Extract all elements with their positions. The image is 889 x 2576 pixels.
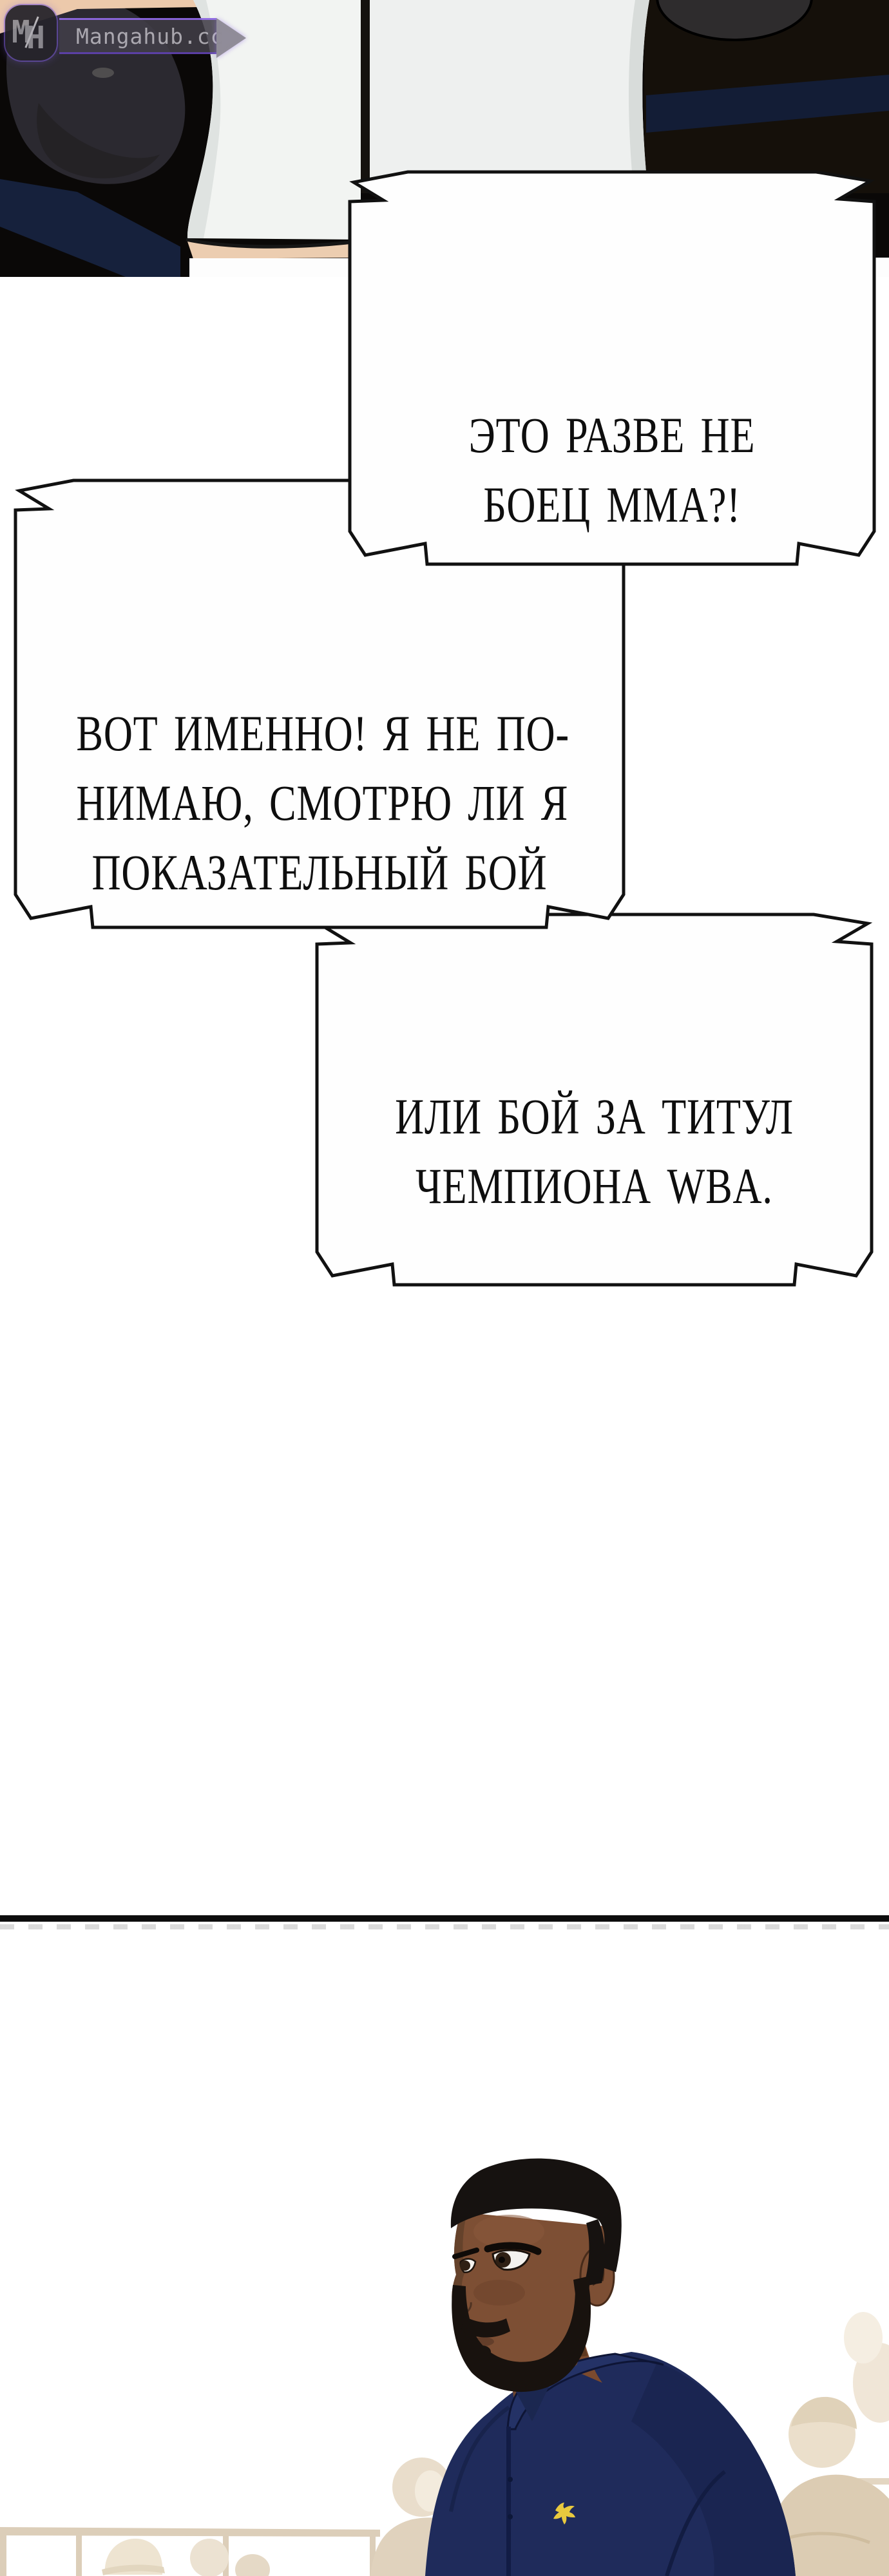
railing-post xyxy=(76,2535,82,2576)
shirt-button xyxy=(508,2477,513,2482)
crowd-head xyxy=(190,2539,229,2576)
railing-post xyxy=(0,2533,6,2576)
iris-left xyxy=(460,2260,470,2271)
bubble-1-line-1: ЭТО РАЗВЕ НЕ xyxy=(402,401,821,470)
cheek-shadow xyxy=(473,2280,525,2306)
shirt-button xyxy=(508,2514,513,2519)
bearded-man-figure xyxy=(387,2145,812,2576)
soul-patch xyxy=(473,2345,491,2358)
speech-bubble-1-shape xyxy=(0,0,889,1327)
panel-divider-dashes xyxy=(0,1924,889,1929)
comic-page: M H Mangahub.cc ЭТО РАЗВЕ НЕ БОЕЦ ММА?! … xyxy=(0,0,889,2576)
speech-bubble-1-text: ЭТО РАЗВЕ НЕ БОЕЦ ММА?! xyxy=(350,401,874,540)
bubble-1-line-2: БОЕЦ ММА?! xyxy=(402,470,821,540)
pupil-right xyxy=(499,2257,505,2263)
railing-bar-left xyxy=(0,2527,380,2537)
crowd-head xyxy=(235,2554,270,2576)
crowd-blob-faint xyxy=(844,2312,883,2363)
panel-divider-line xyxy=(0,1915,889,1922)
shirt-placket xyxy=(506,2427,511,2576)
